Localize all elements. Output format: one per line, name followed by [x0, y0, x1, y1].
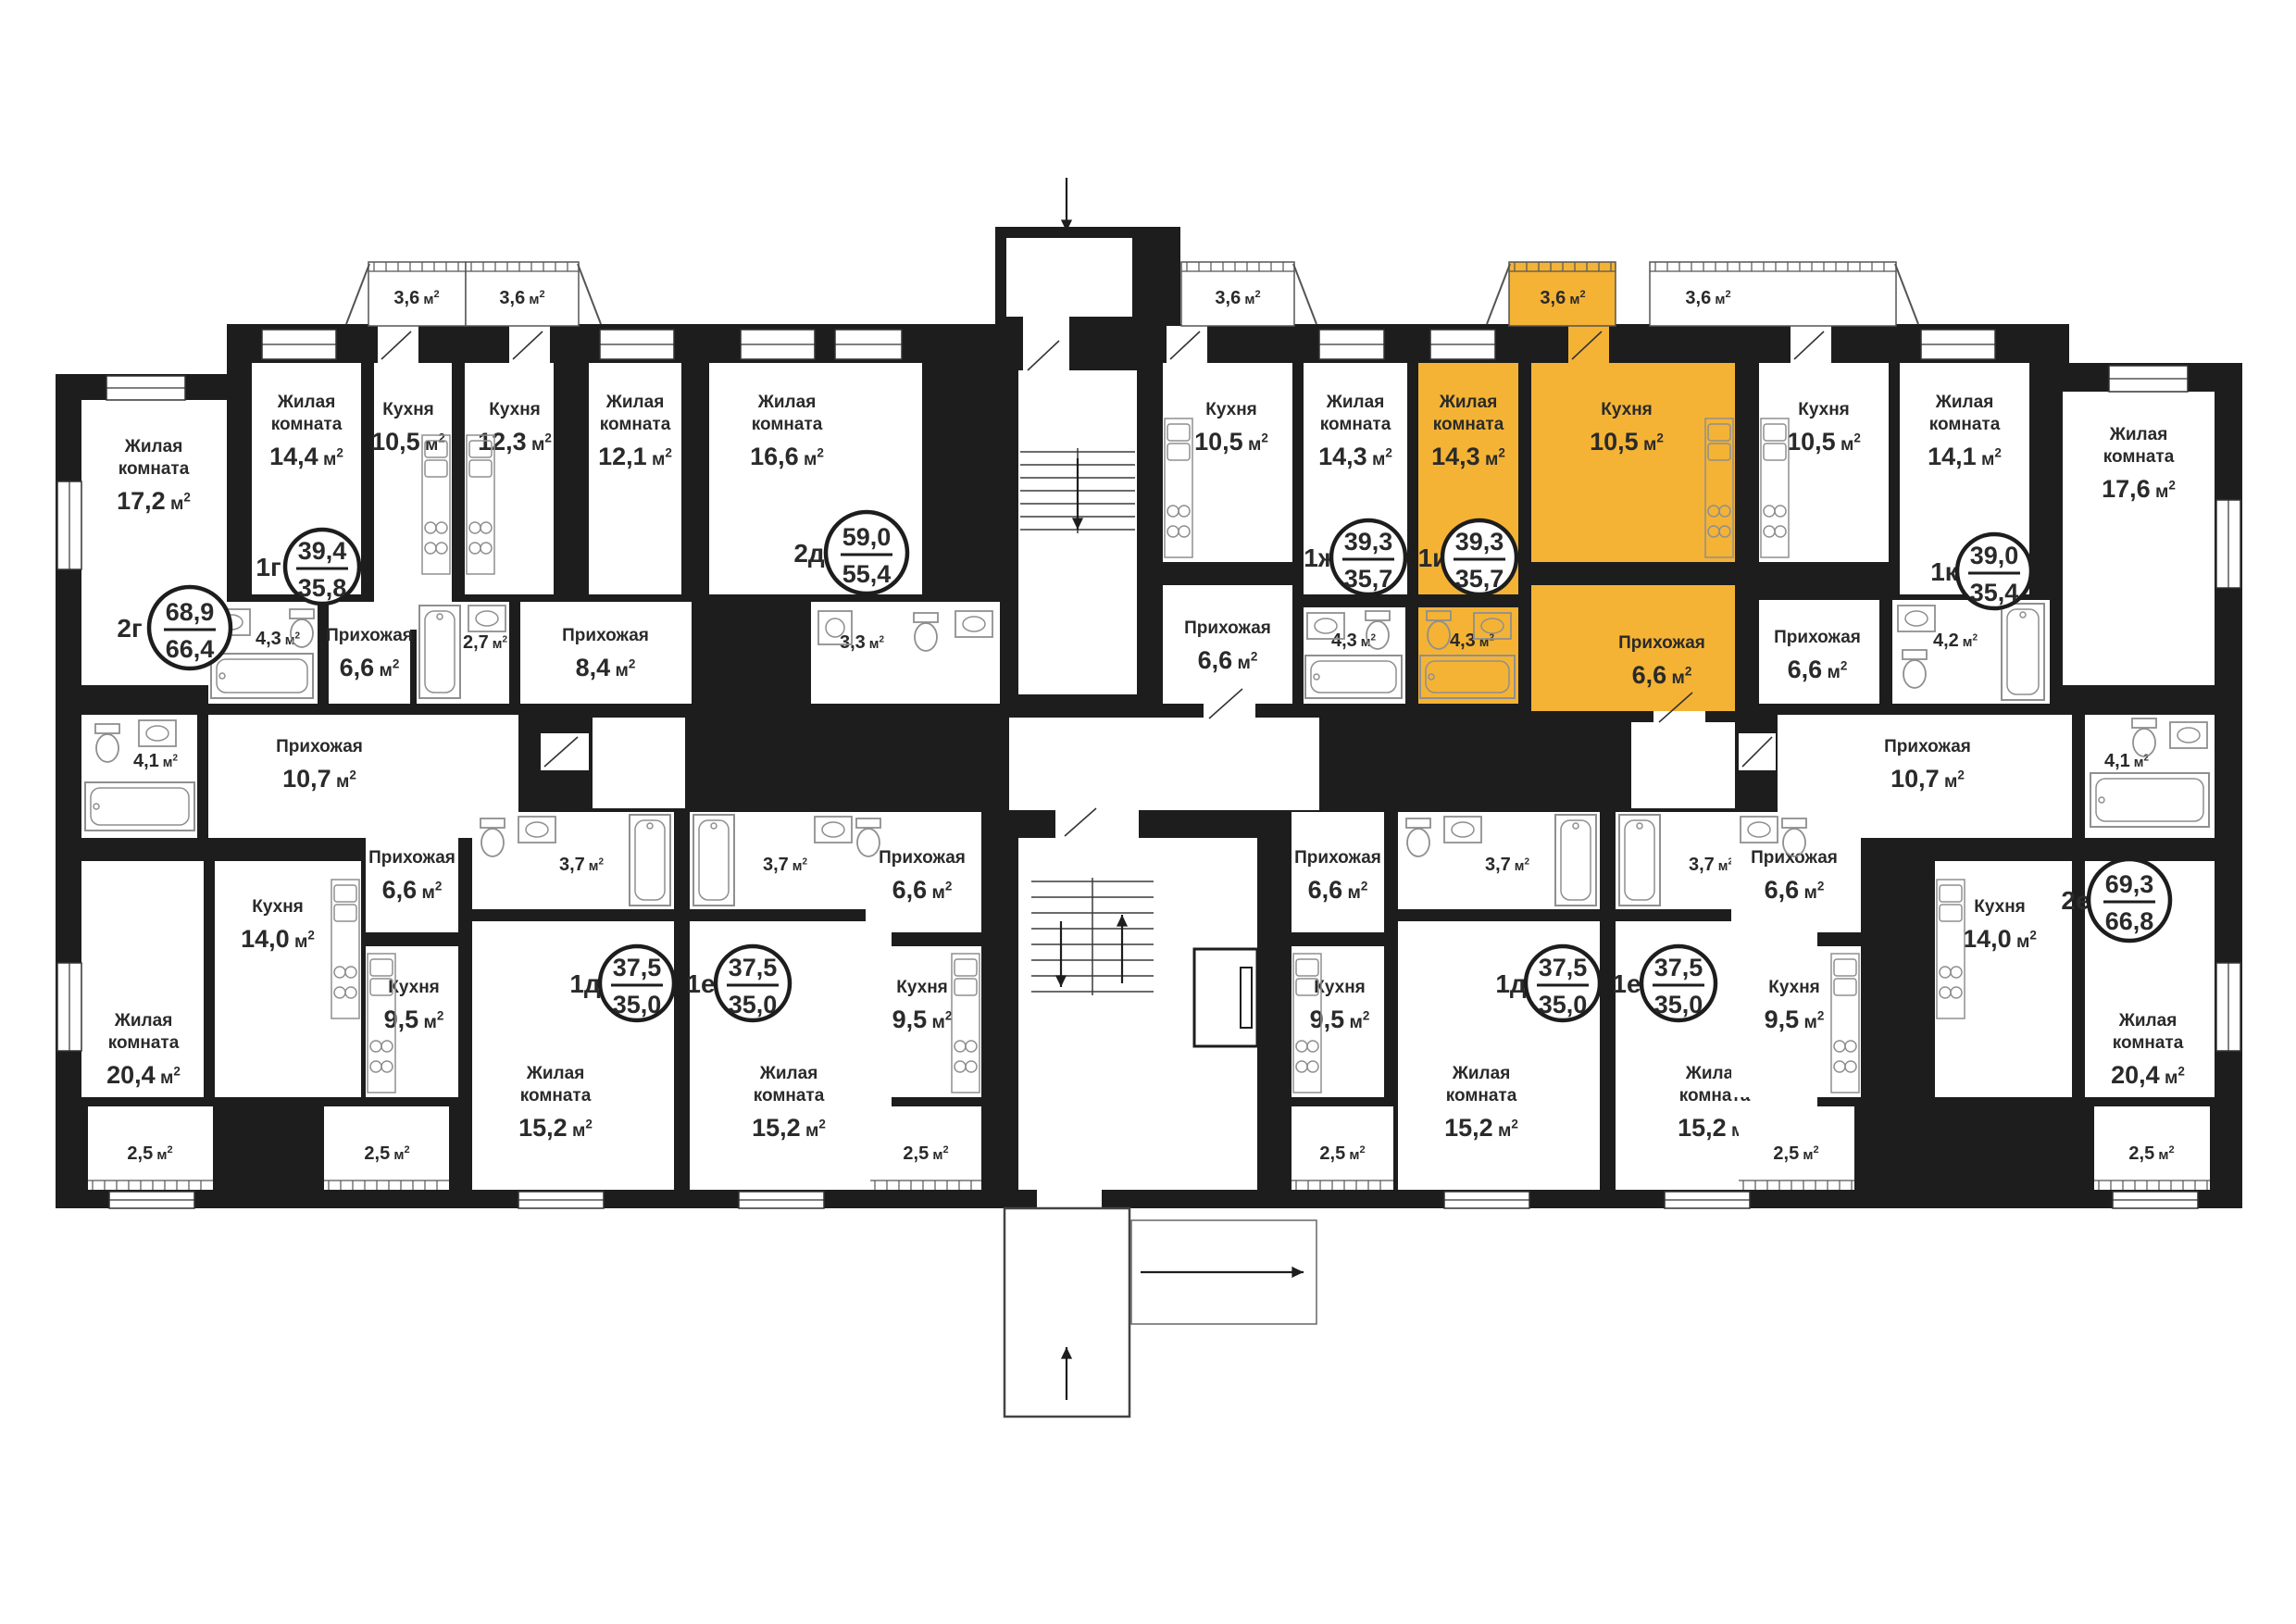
room-2d-living-12-1: Жилаякомната12,1 м2 — [589, 363, 681, 594]
apartment-total-area: 39,3 — [1455, 528, 1504, 556]
room-name-line: Кухня — [1974, 897, 2026, 917]
apartment-living-area: 35,7 — [1455, 565, 1504, 593]
window — [2113, 1192, 2198, 1208]
balcony-area: 3,6 м2 — [1215, 288, 1260, 308]
window — [262, 330, 336, 359]
room-name-line: Жилая — [1439, 393, 1498, 412]
room-name-line: Прихожая — [1751, 848, 1838, 868]
room-2d-hall-8-4: Прихожая8,4 м2 — [520, 602, 692, 704]
apartment-living-area: 66,8 — [2105, 907, 2154, 935]
balcony-area: 3,6 м2 — [1685, 288, 1730, 308]
room-name-line: Жилая — [1326, 393, 1385, 412]
balcony-area: 3,6 м2 — [499, 288, 544, 308]
apartment-living-area: 35,7 — [1344, 565, 1393, 593]
loggia: 2,5 м2 — [2094, 1106, 2210, 1190]
room-name-line: комната — [119, 459, 190, 479]
room-2e-kitchen-14-0: Кухня14,0 м2 — [1935, 861, 2072, 1097]
room-1zh-hall-6-6: Прихожая6,6 м2 — [1163, 585, 1292, 704]
loggia: 2,5 м2 — [324, 1106, 449, 1190]
window — [1430, 330, 1495, 359]
room-1d-l-kitchen-9-5: Кухня9,5 м2 — [366, 946, 458, 1097]
room-1zh-kitchen-10-5: Кухня10,5 м2 — [1163, 363, 1292, 562]
window — [106, 376, 185, 400]
window — [1444, 1192, 1529, 1208]
room-name-line: Жилая — [2109, 425, 2168, 444]
apartment-code: 2е — [2061, 886, 2090, 915]
room-1d-r-bath-3-7: 3,7 м2 — [1398, 812, 1600, 909]
window — [57, 481, 81, 569]
window — [739, 1192, 824, 1208]
room-1e-r-kitchen-9-5: Кухня9,5 м2 — [1731, 946, 1861, 1097]
room-name-line: Жилая — [124, 437, 183, 456]
room-1e-l-bath-3-7: 3,7 м2 — [690, 812, 892, 909]
room-name-line: комната — [1320, 415, 1391, 434]
room-name-line: Кухня — [1798, 400, 1850, 419]
room-name-line: Жилая — [605, 393, 665, 412]
room-1i-kitchen-10-5[interactable]: Кухня10,5 м2 — [1531, 363, 1735, 562]
apartment-code: 1к — [1930, 557, 1959, 586]
balcony-area: 3,6 м2 — [1540, 288, 1585, 308]
room-name-line: комната — [752, 415, 823, 434]
apartment-living-area: 35,0 — [729, 991, 778, 1018]
room-2d-bath-2-7: 2,7 м2 — [417, 602, 509, 704]
window — [2216, 500, 2240, 588]
room-1d-l-hall-6-6: Прихожая6,6 м2 — [366, 812, 458, 932]
room-1d-r-hall-6-6: Прихожая6,6 м2 — [1291, 812, 1384, 932]
balcony-area: 3,6 м2 — [393, 288, 439, 308]
room-name-line: комната — [108, 1033, 180, 1053]
room-name-line: Жилая — [277, 393, 336, 412]
room-name-line: Прихожая — [1184, 618, 1271, 638]
room-name-line: комната — [600, 415, 671, 434]
apartment-code: 1г — [256, 553, 281, 581]
apartment-living-area: 35,0 — [613, 991, 662, 1018]
loggia-area: 2,5 м2 — [1773, 1143, 1818, 1164]
window — [518, 1192, 604, 1208]
room-name-line: комната — [1446, 1086, 1517, 1106]
apartment-code: 2г — [117, 614, 142, 643]
room-name-line: Прихожая — [276, 737, 363, 756]
window — [1319, 330, 1384, 359]
room-name-line: комната — [520, 1086, 592, 1106]
apartment-living-area: 55,4 — [842, 560, 892, 588]
apartment-total-area: 69,3 — [2105, 870, 2154, 898]
room-name-line: Жилая — [526, 1064, 585, 1083]
room-2e-bath-4-1: 4,1 м2 — [2085, 715, 2215, 838]
room-name-line: Кухня — [1768, 978, 1820, 997]
room-name-line: комната — [1929, 415, 2001, 434]
room-name-line: Прихожая — [1618, 633, 1705, 653]
loggia-area: 2,5 м2 — [127, 1143, 172, 1164]
apartment-total-area: 59,0 — [842, 523, 892, 551]
room-1e-l-living-15-2: Жилаякомната15,2 м2 — [690, 921, 892, 1190]
apartment-living-area: 35,0 — [1539, 991, 1588, 1018]
room-1e-l-hall-6-6: Прихожая6,6 м2 — [866, 812, 981, 932]
room-name-line: Прихожая — [368, 848, 455, 868]
window — [1665, 1192, 1750, 1208]
window — [57, 963, 81, 1051]
apartment-code: 2д — [793, 539, 825, 568]
room-1k-kitchen-10-5: Кухня10,5 м2 — [1759, 363, 1889, 562]
room-name-line: комната — [754, 1086, 825, 1106]
loggia: 2,5 м2 — [88, 1106, 213, 1190]
window — [2216, 963, 2240, 1051]
room-1i-hall-6-6[interactable]: Прихожая6,6 м2 — [1531, 585, 1735, 711]
loggia-area: 2,5 м2 — [903, 1143, 948, 1164]
apartment-code: 1е — [686, 969, 715, 998]
room-name-line: Кухня — [382, 400, 434, 419]
apartment-total-area: 39,4 — [298, 537, 347, 565]
apartment-total-area: 39,0 — [1970, 542, 2019, 569]
room-name-line: Кухня — [1601, 400, 1653, 419]
floor-plan-svg: Жилаякомната17,2 м2Жилаякомната14,4 м2Ку… — [0, 0, 2296, 1624]
room-name-line: Прихожая — [1774, 628, 1861, 647]
room-name-line: Жилая — [114, 1011, 173, 1031]
window — [109, 1192, 194, 1208]
room-2g-kitchen-14-0: Кухня14,0 м2 — [215, 861, 361, 1097]
apartment-code: 1д — [1495, 969, 1527, 998]
room-name-line: комната — [271, 415, 343, 434]
room-name-line: Жилая — [1935, 393, 1994, 412]
room-1e-r-hall-6-6: Прихожая6,6 м2 — [1731, 812, 1861, 932]
apartment-living-area: 35,4 — [1970, 579, 2019, 606]
apartment-total-area: 37,5 — [1654, 954, 1703, 981]
room-name-line: Кухня — [896, 978, 948, 997]
window — [2109, 366, 2188, 392]
room-name-line: Жилая — [2118, 1011, 2177, 1031]
room-2g-living-20-4: Жилаякомната20,4 м2 — [81, 861, 204, 1097]
apartment-code: 1д — [569, 969, 601, 998]
window — [1921, 330, 1995, 359]
apartment-total-area: 37,5 — [613, 954, 662, 981]
loggia: 2,5 м2 — [870, 1106, 981, 1190]
apartment-total-area: 37,5 — [1539, 954, 1588, 981]
room-name-line: Прихожая — [326, 626, 413, 645]
balcony: 3,6 м2 — [1650, 262, 1918, 326]
window — [600, 330, 674, 359]
room-name-line: Жилая — [759, 1064, 818, 1083]
room-1d-r-kitchen-9-5: Кухня9,5 м2 — [1291, 946, 1384, 1097]
apartment-total-area: 39,3 — [1344, 528, 1393, 556]
room-name-line: Прихожая — [562, 626, 649, 645]
floor-plan-page: Жилаякомната17,2 м2Жилаякомната14,4 м2Ку… — [0, 0, 2296, 1624]
room-name-line: Кухня — [489, 400, 541, 419]
room-name-line: Жилая — [1452, 1064, 1511, 1083]
room-2d-kitchen-12-3: Кухня12,3 м2 — [465, 363, 554, 594]
room-name-line: Кухня — [1205, 400, 1257, 419]
window — [835, 330, 902, 359]
loggia: 2,5 м2 — [1291, 1106, 1393, 1190]
apartment-living-area: 35,0 — [1654, 991, 1703, 1018]
room-1e-l-kitchen-9-5: Кухня9,5 м2 — [866, 946, 981, 1097]
room-name-line: Прихожая — [1294, 848, 1381, 868]
loggia-area: 2,5 м2 — [2128, 1143, 2174, 1164]
apartment-total-area: 37,5 — [729, 954, 778, 981]
room-name-line: комната — [2113, 1033, 2184, 1053]
room-2g-hall-10-7: Прихожая10,7 м2 — [208, 715, 518, 838]
room-1k-hall-6-6: Прихожая6,6 м2 — [1759, 600, 1879, 704]
loggia-area: 2,5 м2 — [1319, 1143, 1365, 1164]
apartment-living-area: 35,8 — [298, 574, 347, 602]
room-2e-living-17-6: Жилаякомната17,6 м2 — [2063, 392, 2215, 685]
room-name-line: Прихожая — [879, 848, 966, 868]
elevator — [1194, 949, 1257, 1046]
room-name-line: Жилая — [757, 393, 817, 412]
apartment-code: 1е — [1612, 969, 1641, 998]
room-name-line: Кухня — [252, 897, 304, 917]
loggia: 2,5 м2 — [1739, 1106, 1854, 1190]
room-name-line: Прихожая — [1884, 737, 1971, 756]
room-1d-l-bath-3-7: 3,7 м2 — [472, 812, 674, 909]
room-name-line: комната — [2103, 447, 2175, 467]
room-1g-kitchen-10-5: Кухня10,5 м2 — [371, 363, 452, 630]
loggia-area: 2,5 м2 — [364, 1143, 409, 1164]
window — [741, 330, 815, 359]
apartment-living-area: 66,4 — [166, 635, 215, 663]
room-1g-hall-6-6: Прихожая6,6 м2 — [326, 602, 413, 704]
apartment-total-area: 68,9 — [166, 598, 215, 626]
room-name-line: комната — [1433, 415, 1504, 434]
